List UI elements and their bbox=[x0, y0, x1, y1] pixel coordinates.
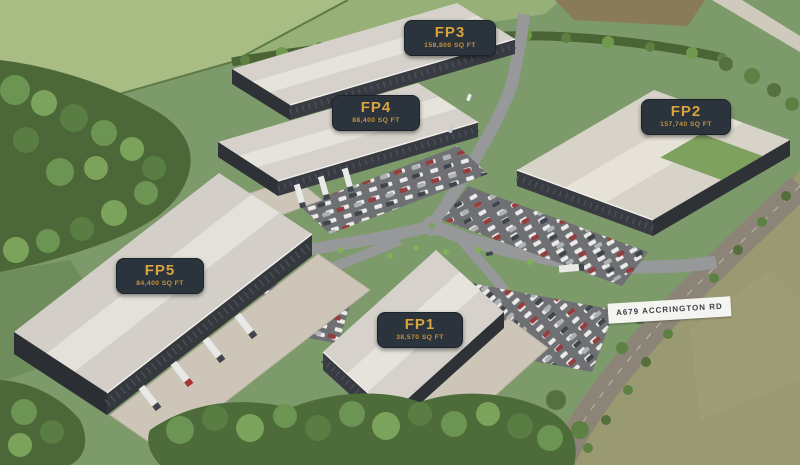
building-area-fp2: 157,740 SQ FT bbox=[652, 121, 720, 129]
building-area-fp1: 38,570 SQ FT bbox=[388, 334, 452, 342]
building-code-fp5: FP5 bbox=[127, 263, 193, 279]
building-code-fp3: FP3 bbox=[415, 25, 485, 41]
building-label-fp5[interactable]: FP5 84,400 SQ FT bbox=[116, 258, 204, 294]
building-code-fp4: FP4 bbox=[343, 100, 409, 116]
building-code-fp1: FP1 bbox=[388, 317, 452, 333]
building-area-fp4: 88,400 SQ FT bbox=[343, 117, 409, 125]
building-label-fp1[interactable]: FP1 38,570 SQ FT bbox=[377, 312, 463, 348]
render-canvas bbox=[0, 0, 800, 465]
building-label-fp2[interactable]: FP2 157,740 SQ FT bbox=[641, 99, 731, 135]
aerial-masterplan: FP3 158,800 SQ FT FP4 88,400 SQ FT FP2 1… bbox=[0, 0, 800, 465]
building-area-fp3: 158,800 SQ FT bbox=[415, 42, 485, 50]
building-code-fp2: FP2 bbox=[652, 104, 720, 120]
building-label-fp3[interactable]: FP3 158,800 SQ FT bbox=[404, 20, 496, 56]
building-label-fp4[interactable]: FP4 88,400 SQ FT bbox=[332, 95, 420, 131]
building-area-fp5: 84,400 SQ FT bbox=[127, 280, 193, 288]
